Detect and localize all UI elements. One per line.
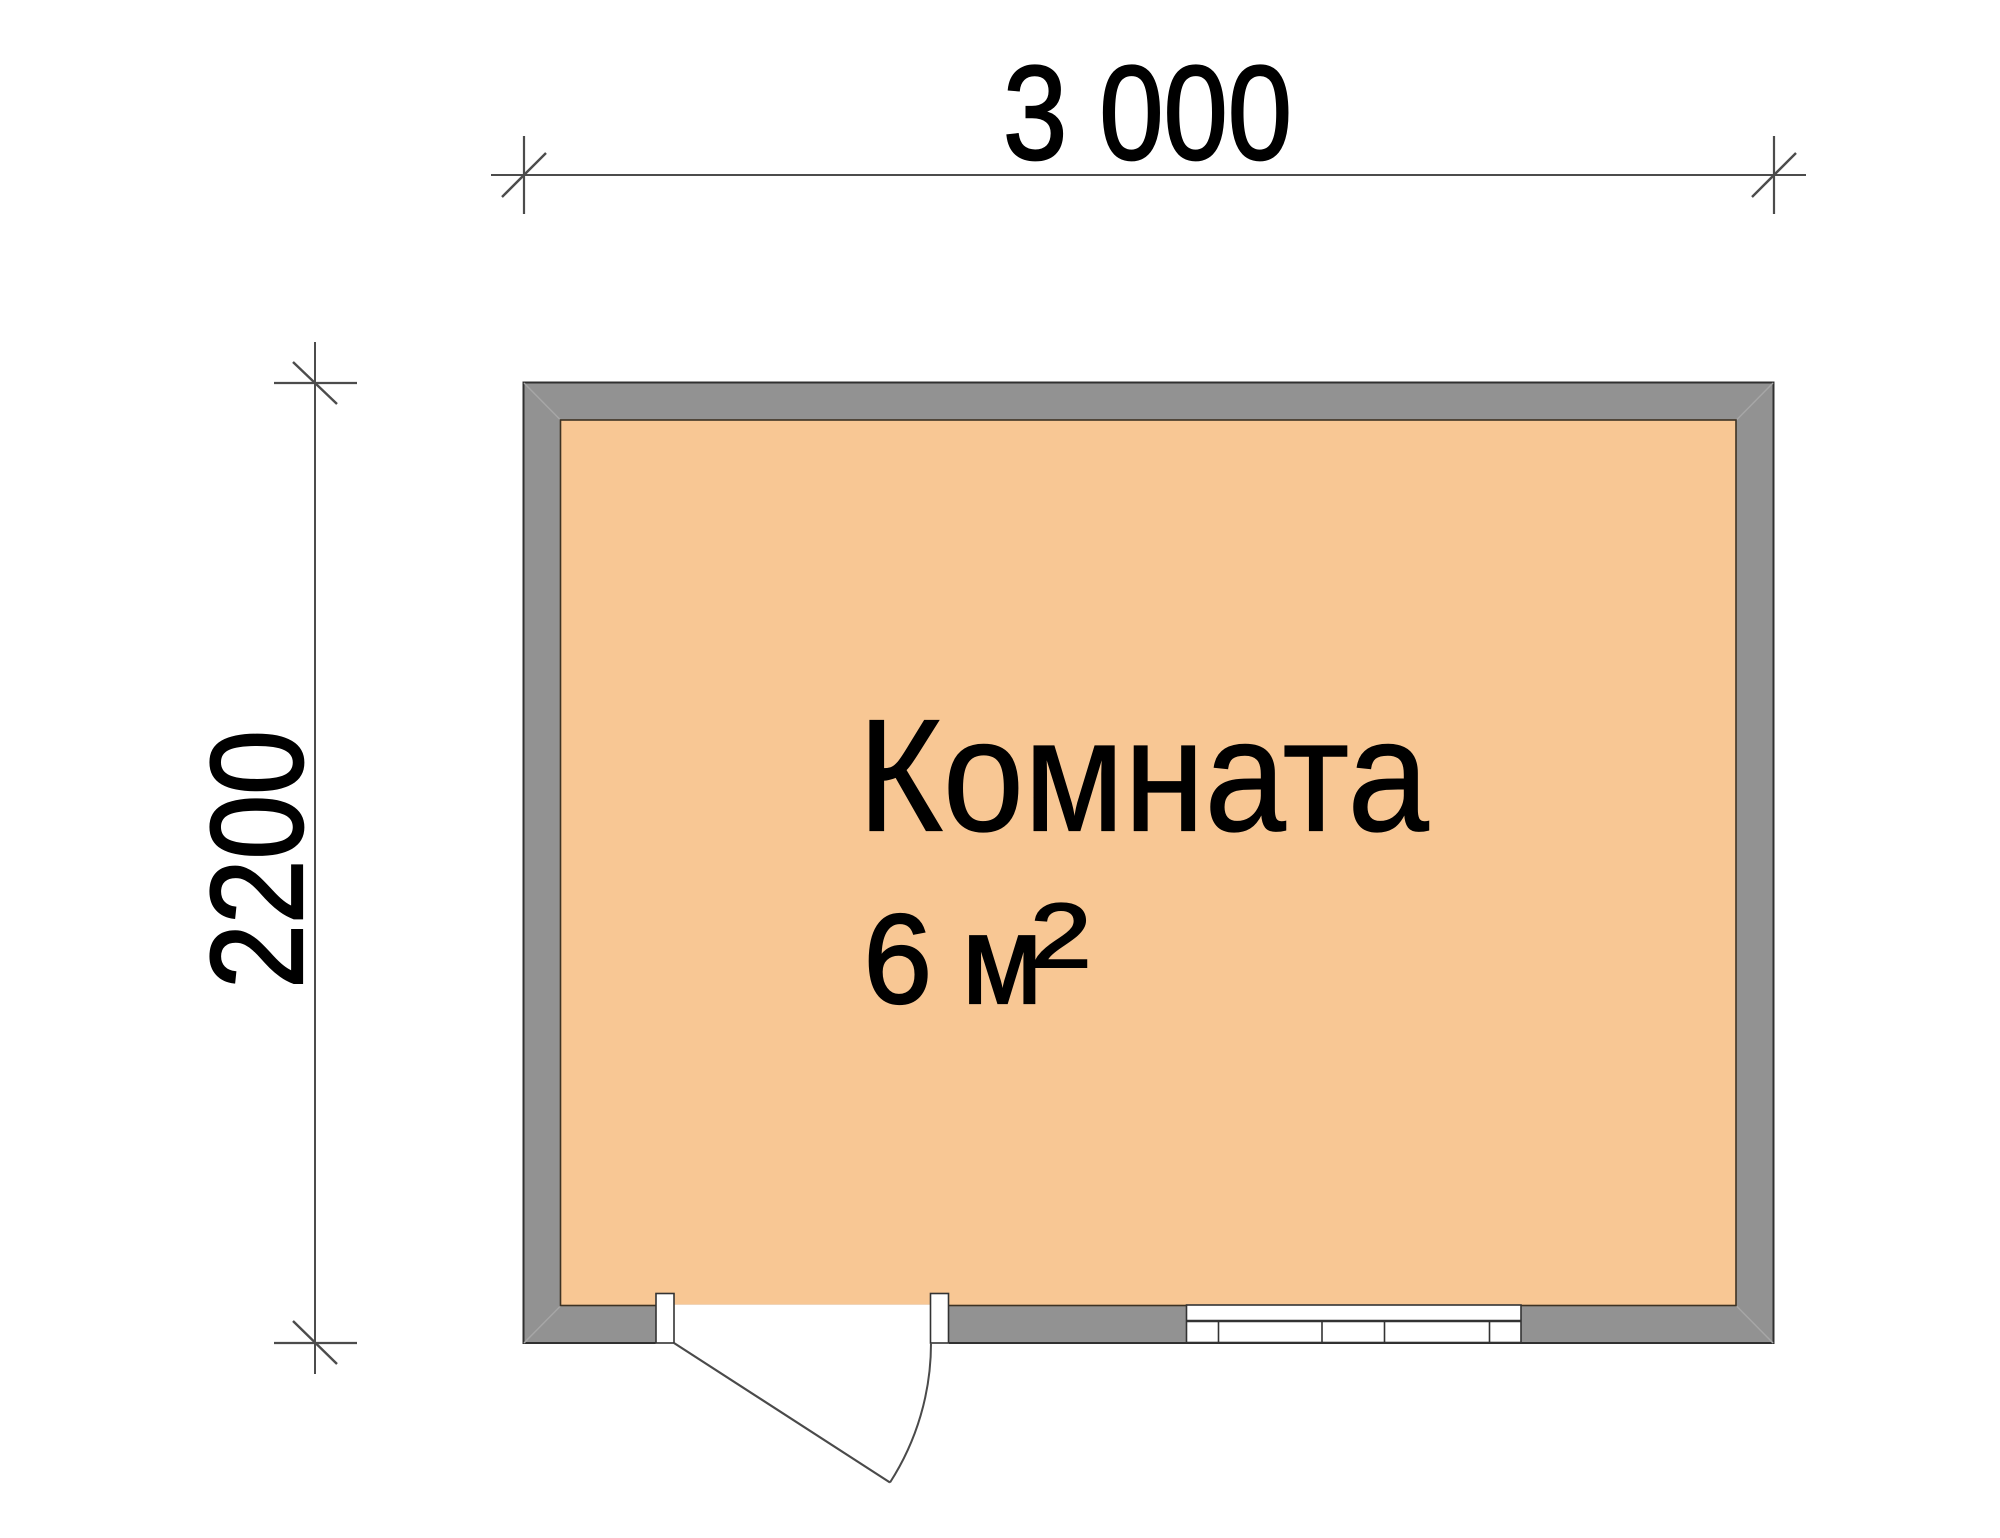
- svg-text:2200: 2200: [185, 730, 331, 989]
- svg-text:2: 2: [1030, 885, 1091, 987]
- svg-text:6: 6: [864, 888, 933, 1030]
- svg-text:Комната: Комната: [858, 686, 1430, 865]
- svg-text:3 000: 3 000: [1003, 38, 1292, 188]
